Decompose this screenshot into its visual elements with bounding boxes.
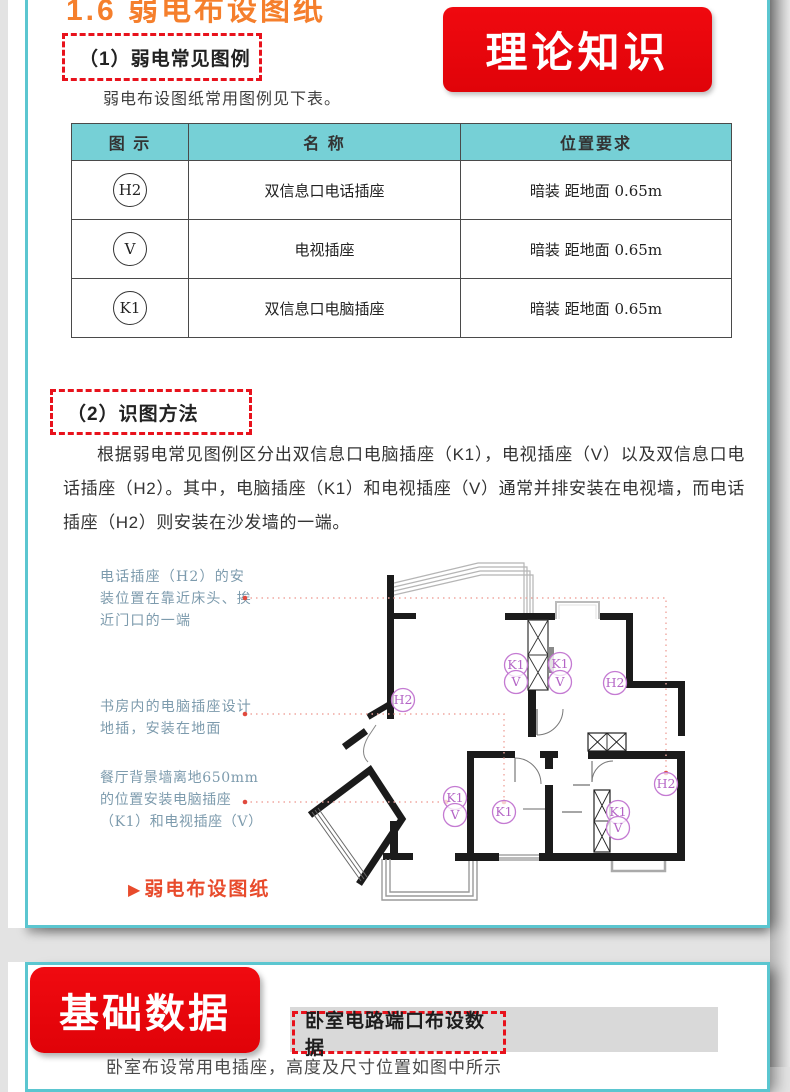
floor-plan: K1 V K1 V H2 H2 K1 V K1 K1 V H2 <box>240 557 745 907</box>
row-requirement: 暗装 距地面 0.65m <box>461 161 732 220</box>
row-requirement: 暗装 距地面 0.65m <box>461 220 732 279</box>
svg-text:H2: H2 <box>606 675 625 690</box>
plan-label-h2: H2 <box>604 672 627 695</box>
svg-text:H2: H2 <box>657 776 676 791</box>
table-row: V 电视插座 暗装 距地面 0.65m <box>72 220 732 279</box>
plan-label-h2: H2 <box>392 689 415 712</box>
section-title: 1.6 弱电布设图纸 <box>66 0 326 29</box>
symbol-v-icon: V <box>113 232 147 266</box>
plan-label-k1: K1 <box>493 801 516 824</box>
row-requirement: 暗装 距地面 0.65m <box>461 279 732 338</box>
legend-table: 图 示 名 称 位置要求 H2 双信息口电话插座 暗装 距地面 0.65m V … <box>71 123 732 338</box>
table-row: H2 双信息口电话插座 暗装 距地面 0.65m <box>72 161 732 220</box>
basic-data-heading: 卧室电路端口布设数据 <box>305 1006 503 1060</box>
row-name: 电视插座 <box>189 220 461 279</box>
plan-label-v: V <box>505 671 528 694</box>
method-paragraph: 根据弱电常见图例区分出双信息口电脑插座（K1），电视插座（V）以及双信息口电话插… <box>63 438 745 540</box>
basic-data-heading-box: 卧室电路端口布设数据 <box>292 1011 506 1054</box>
page-right-shadow <box>770 0 790 1067</box>
svg-text:V: V <box>554 674 565 689</box>
basic-data-badge: 基础数据 <box>30 967 260 1053</box>
col-header-name: 名 称 <box>189 124 461 161</box>
row-name: 双信息口电话插座 <box>189 161 461 220</box>
svg-text:V: V <box>449 807 460 822</box>
svg-text:K1: K1 <box>507 657 524 672</box>
leader-lines <box>245 598 666 802</box>
svg-text:K1: K1 <box>495 804 512 819</box>
col-header-requirement: 位置要求 <box>461 124 732 161</box>
table-row: K1 双信息口电脑插座 暗装 距地面 0.65m <box>72 279 732 338</box>
svg-text:K1: K1 <box>446 790 463 805</box>
leader-dots <box>243 596 669 805</box>
plan-label-v: V <box>607 817 630 840</box>
svg-text:V: V <box>510 674 521 689</box>
symbol-k1-icon: K1 <box>113 291 147 325</box>
legend-heading-box: （1）弱电常见图例 <box>62 33 262 81</box>
svg-text:K1: K1 <box>551 656 568 671</box>
legend-heading: （1）弱电常见图例 <box>79 44 251 71</box>
plan-label-v: V <box>549 671 572 694</box>
triangle-icon: ▶ <box>128 880 142 899</box>
clipped-body-text: 卧室布设常用电插座，高度及尺寸位置如图中所示 <box>106 1053 726 1078</box>
legend-intro: 弱电布设图纸常用图例见下表。 <box>103 85 341 109</box>
basic-data-card: 基础数据 卧室电路端口布设数据 卧室布设常用电插座，高度及尺寸位置如图中所示 <box>25 962 770 1092</box>
svg-text:H2: H2 <box>394 692 413 707</box>
row-name: 双信息口电脑插座 <box>189 279 461 338</box>
method-heading-box: （2）识图方法 <box>50 389 252 435</box>
plan-label-v: V <box>444 804 467 827</box>
symbol-h2-icon: H2 <box>113 173 147 207</box>
col-header-symbol: 图 示 <box>72 124 189 161</box>
svg-text:V: V <box>612 820 623 835</box>
table-header-row: 图 示 名 称 位置要求 <box>72 124 732 161</box>
theory-card: 1.6 弱电布设图纸 （1）弱电常见图例 理论知识 弱电布设图纸常用图例见下表。… <box>25 0 770 928</box>
figure-caption: ▶弱电布设图纸 <box>128 874 270 901</box>
theory-badge: 理论知识 <box>443 7 712 92</box>
plan-label-h2: H2 <box>655 773 678 796</box>
method-heading: （2）识图方法 <box>67 399 199 426</box>
